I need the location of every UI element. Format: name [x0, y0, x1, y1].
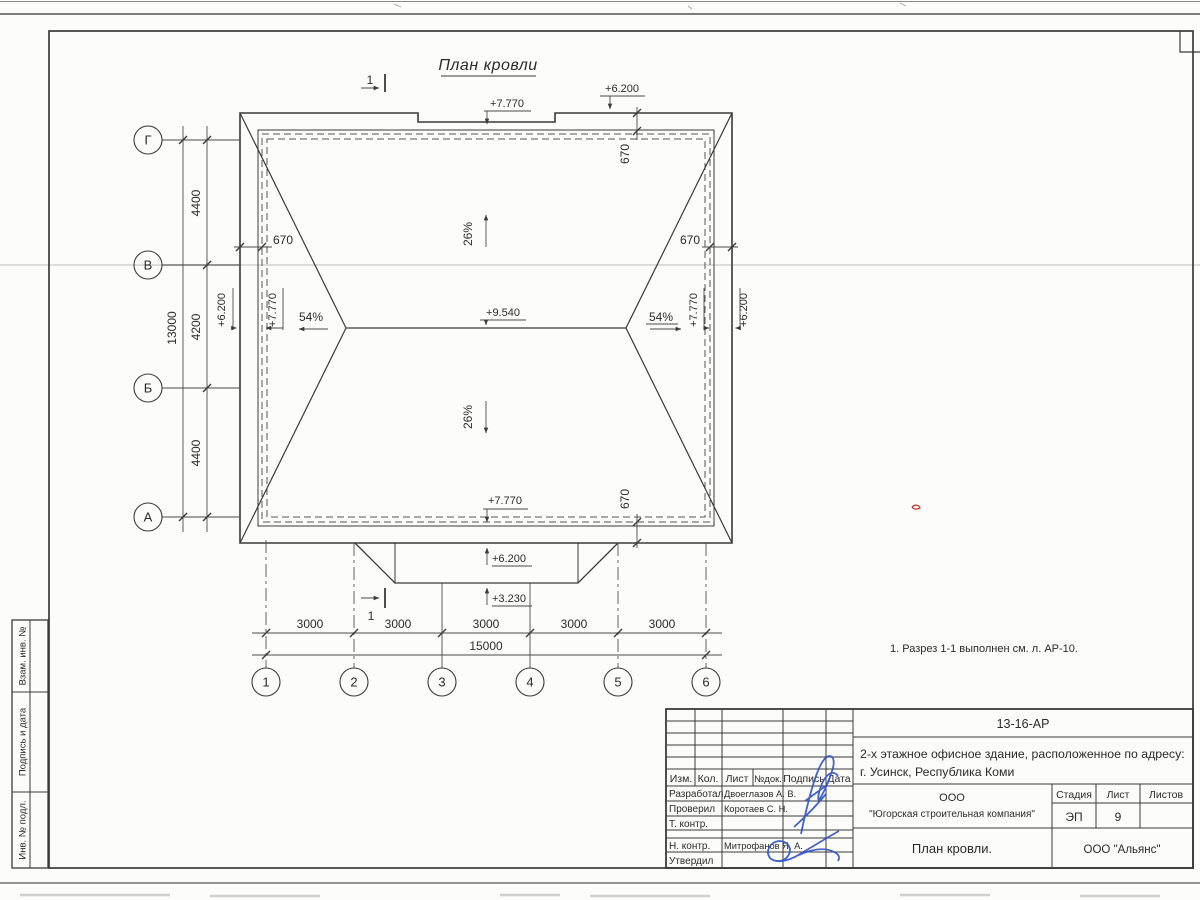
row-axes: Г В Б А	[134, 126, 240, 531]
slope-54-west: 54%	[299, 310, 328, 329]
svg-text:+7.770: +7.770	[490, 98, 524, 110]
elev-6200-left: +6.200	[216, 288, 237, 330]
side-strip-label-inv: Инв. № подл.	[18, 800, 29, 859]
svg-text:+6.200: +6.200	[216, 293, 228, 327]
slope-54-east: 54%	[646, 310, 681, 329]
axis-label-1: 1	[262, 675, 269, 690]
roof-plan-drawing: Взам. инв. № Подпись и дата Инв. № подл.…	[0, 0, 1200, 900]
svg-text:+7.770: +7.770	[488, 495, 522, 507]
elev-7770-top: +7.770	[484, 98, 531, 124]
elevation-marks: +7.770 +6.200 +9.540 +6.200 +7.770 +7.77…	[216, 83, 750, 606]
dim-3000-5: 3000	[649, 617, 676, 631]
axis-label-v: В	[144, 258, 153, 273]
slope-26-north: 26%	[461, 215, 486, 247]
roof-outline	[240, 113, 732, 583]
role-tcontrol: Т. контр.	[669, 819, 708, 830]
hip-and-ridge-lines	[240, 113, 732, 543]
plan-title: План кровли	[438, 57, 537, 74]
side-strip-label-podpis: Подпись и дата	[18, 707, 29, 776]
left-dimensions: 13000 4400 4200 4400	[165, 126, 211, 532]
dim-3000-2: 3000	[385, 617, 412, 631]
svg-text:+6.200: +6.200	[605, 83, 639, 95]
dim-4400-top: 4400	[189, 189, 203, 216]
side-strip-label-vzam: Взам. инв. №	[18, 627, 29, 686]
svg-text:1: 1	[367, 73, 374, 87]
svg-text:26%: 26%	[461, 405, 475, 429]
axis-label-3: 3	[438, 675, 445, 690]
org-line2: "Югорская строительная компания"	[869, 809, 1035, 820]
section-mark-top: 1	[361, 73, 385, 92]
sheet-heading: План кровли	[438, 57, 537, 76]
axis-label-g: Г	[144, 133, 151, 148]
red-pen-artifact	[912, 505, 920, 509]
elev-7770-bottom: +7.770	[483, 495, 528, 522]
sheet-title: План кровли.	[912, 841, 992, 856]
axis-label-2: 2	[350, 675, 357, 690]
name-checked: Коротаев С. Н.	[724, 804, 788, 814]
sheet-label: Лист	[1107, 789, 1130, 801]
org-line1: ООО	[939, 792, 965, 804]
axis-label-6: 6	[702, 675, 709, 690]
section-marks: 1 1	[361, 73, 385, 623]
role-developed: Разработал	[669, 788, 724, 800]
dim-4200-mid: 4200	[189, 313, 203, 340]
stage-label: Стадия	[1056, 789, 1092, 801]
axis-bubbles-bottom: 1 2 3 4 5 6	[252, 668, 720, 696]
svg-text:+7.770: +7.770	[267, 293, 279, 327]
slope-26-south: 26%	[461, 401, 486, 433]
entrance-canopy	[355, 543, 618, 583]
svg-text:+6.200: +6.200	[492, 553, 526, 565]
scan-artifacts	[0, 2, 1200, 897]
stage-value: ЭП	[1065, 810, 1082, 824]
role-checked: Проверил	[669, 804, 715, 815]
role-ncontrol: Н. контр.	[669, 841, 710, 852]
col-kol: Кол.	[698, 773, 719, 785]
role-approved: Утвердил	[669, 856, 713, 867]
drawing-note: 1. Разрез 1-1 выполнен см. л. АР-10.	[890, 643, 1078, 655]
dim-total-15000: 15000	[469, 639, 503, 653]
axis-label-5: 5	[614, 675, 621, 690]
title-block: Изм. Кол. Лист №док. Подпись Дата Разраб…	[666, 709, 1193, 868]
slope-annotations: 26% 26% 54% 54%	[299, 215, 681, 433]
name-ncontrol: Митрофанов Я. А.	[724, 841, 803, 851]
dim-3000-4: 3000	[561, 617, 588, 631]
svg-text:+3.230: +3.230	[492, 593, 526, 605]
sheets-label: Листов	[1149, 789, 1184, 801]
col-izm: Изм.	[670, 773, 693, 785]
elev-7770-right: +7.770	[688, 288, 709, 330]
sheet-value: 9	[1115, 810, 1122, 824]
object-line2: г. Усинск, Республика Коми	[860, 765, 1014, 779]
svg-text:1: 1	[368, 609, 375, 623]
svg-text:26%: 26%	[461, 222, 475, 246]
name-developed: Двоеглазов А. В.	[724, 789, 796, 799]
svg-text:54%: 54%	[299, 310, 323, 324]
col-ndoc: №док.	[754, 774, 782, 785]
elev-3230-canopy: +3.230	[487, 588, 532, 606]
corner-code-box	[1180, 31, 1200, 52]
dim-4400-bottom: 4400	[189, 439, 203, 466]
scanned-drawing-sheet: Взам. инв. № Подпись и дата Инв. № подл.…	[0, 0, 1200, 900]
section-mark-bottom: 1	[361, 588, 385, 623]
svg-text:+9.540: +9.540	[486, 307, 520, 319]
elev-6200-right: +6.200	[736, 288, 751, 330]
elev-6200-canopy: +6.200	[487, 548, 532, 566]
elev-6200-top-right: +6.200	[600, 83, 645, 109]
elev-7770-left: +7.770	[266, 288, 283, 330]
dim-670-right-mid: 670	[680, 233, 700, 247]
dim-3000-1: 3000	[297, 617, 324, 631]
dim-total-13000: 13000	[165, 311, 179, 345]
side-strip: Взам. инв. № Подпись и дата Инв. № подл.	[12, 620, 48, 868]
axis-label-a: А	[144, 510, 153, 525]
axis-label-4: 4	[526, 675, 533, 690]
col-sign: Подпись	[783, 773, 825, 785]
dim-670-bottom-right: 670	[618, 489, 632, 509]
svg-text:54%: 54%	[649, 310, 673, 324]
svg-text:+7.770: +7.770	[688, 293, 700, 327]
dim-3000-3: 3000	[473, 617, 500, 631]
dim-670-top-right: 670	[618, 144, 632, 164]
signature-1	[794, 756, 838, 834]
axis-label-b: Б	[144, 381, 153, 396]
dim-670-top-left: 670	[273, 233, 293, 247]
elev-9540-ridge: +9.540	[480, 307, 526, 325]
object-line1: 2-х этажное офисное здание, расположенно…	[860, 747, 1185, 761]
col-list: Лист	[726, 773, 749, 785]
doc-number: 13-16-АР	[997, 717, 1050, 731]
stamp-right-section: 13-16-АР 2-х этажное офисное здание, рас…	[860, 717, 1185, 856]
contractor-name: ООО "Альянс"	[1084, 844, 1161, 856]
